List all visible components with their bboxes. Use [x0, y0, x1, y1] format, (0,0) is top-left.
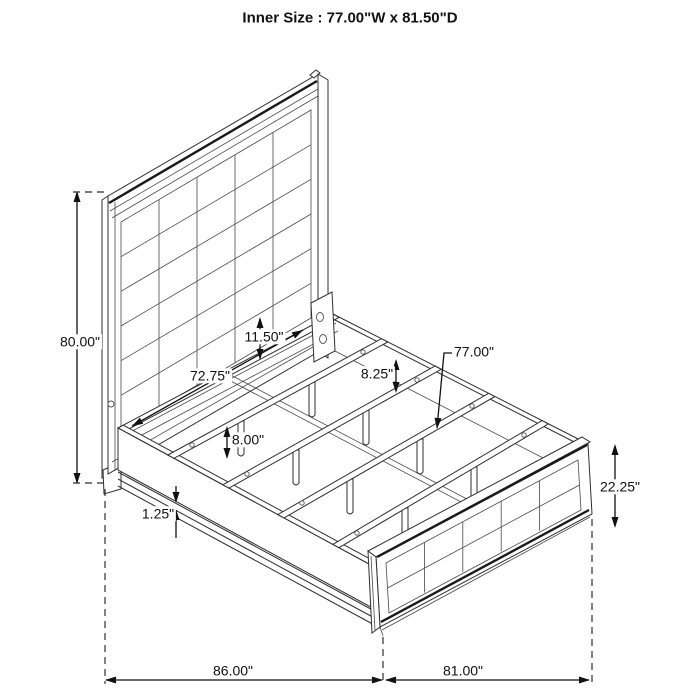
dim-label-headboard-inner-width: 72.75"	[188, 368, 232, 383]
dim-label-rail-to-slat: 8.25"	[359, 366, 395, 381]
dim-overall-width	[385, 677, 590, 684]
dim-label-footboard-height: 22.25"	[598, 479, 642, 494]
dim-label-rail-trim: 1.25"	[140, 506, 176, 521]
side-rail	[118, 425, 385, 628]
bed-line-drawing	[0, 0, 700, 700]
dim-label-headboard-bottom-section: 11.50"	[243, 329, 286, 344]
dim-label-slat-support-height: 8.00"	[230, 432, 266, 447]
dim-label-headboard-height: 80.00"	[58, 334, 102, 349]
diagram-canvas: Inner Size : 77.00"W x 81.50"D	[0, 0, 700, 700]
dim-label-overall-width: 81.00"	[441, 663, 485, 678]
footboard	[368, 437, 592, 636]
dim-label-slat-length: 77.00"	[452, 344, 496, 359]
dim-label-overall-depth: 86.00"	[211, 663, 255, 678]
headboard-bracket	[311, 292, 335, 362]
